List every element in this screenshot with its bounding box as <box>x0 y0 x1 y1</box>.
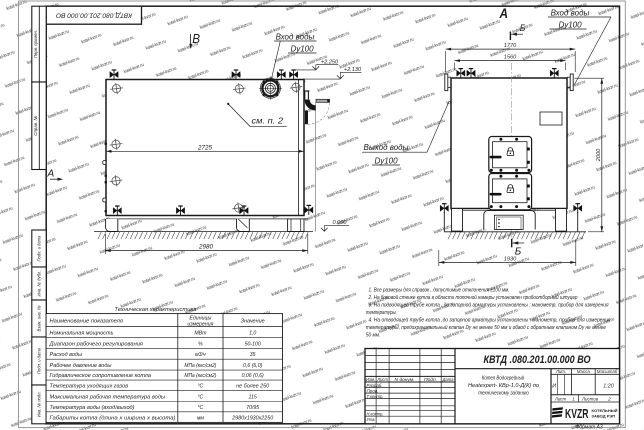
svg-text:ЗАВОД РЭП: ЗАВОД РЭП <box>592 414 616 419</box>
svg-text:Вход воды: Вход воды <box>276 33 315 42</box>
svg-text:Масса: Масса <box>577 369 591 374</box>
svg-text:1930: 1930 <box>504 256 517 262</box>
svg-text:3. На подводящей трубе котла: 3. На подводящей трубе котла , до запорн… <box>369 301 609 308</box>
svg-text:Максимальная рабочая температу: Максимальная рабочая температура воды <box>50 394 166 400</box>
svg-text:N докум.: N докум. <box>395 377 415 382</box>
svg-text:температуры, предохранительный: температуры, предохранительный клапан Dу… <box>366 324 606 331</box>
svg-text:Справ. №: Справ. № <box>33 116 38 136</box>
svg-text:Heatexpert- КВр-1,0-Д(К) по: Heatexpert- КВр-1,0-Д(К) по <box>468 383 539 389</box>
svg-text:МПа (кгс/см2): МПа (кгс/см2) <box>184 373 216 379</box>
svg-text:%: % <box>198 341 203 347</box>
svg-text:Лист: Лист <box>376 377 388 382</box>
svg-text:1770: 1770 <box>504 43 517 49</box>
svg-text:Dy100: Dy100 <box>290 45 314 54</box>
svg-text:115: 115 <box>249 394 257 400</box>
svg-text:МВт: МВт <box>194 331 207 337</box>
svg-text:КВТД.080.201.00.000 ВО: КВТД.080.201.00.000 ВО <box>56 11 132 18</box>
svg-text:Выход воды: Выход воды <box>364 143 409 152</box>
svg-text:Т.контр.: Т.контр. <box>367 394 384 399</box>
svg-text:2: 2 <box>607 397 611 402</box>
svg-text:температуры.: температуры. <box>366 310 397 316</box>
svg-text:Номинальная мощность: Номинальная мощность <box>50 331 114 337</box>
svg-text:Котел Водогрейный: Котел Водогрейный <box>482 375 525 382</box>
svg-text:Подп. и дата: Подп. и дата <box>37 348 42 374</box>
svg-text:Листов: Листов <box>581 397 599 402</box>
svg-text:Инв. № дубл.: Инв. № дубл. <box>37 271 42 297</box>
svg-text:Лист: Лист <box>554 397 567 402</box>
svg-text:Разраб.: Разраб. <box>367 383 383 388</box>
svg-text:А: А <box>499 6 508 21</box>
svg-text:мм: мм <box>197 416 205 422</box>
svg-text:Перв. примен.: Перв. примен. <box>33 30 38 58</box>
svg-text:Габариты котла (длина х ширина: Габариты котла (длина х ширина х высота) <box>50 416 176 422</box>
svg-text:0,06 (0,6): 0,06 (0,6) <box>242 373 264 379</box>
svg-text:70/95: 70/95 <box>246 405 259 411</box>
svg-text:50-100: 50-100 <box>245 341 261 347</box>
svg-text:Б: Б <box>520 23 526 34</box>
svg-text:Лит.: Лит. <box>555 369 566 374</box>
svg-text:35: 35 <box>250 352 256 358</box>
svg-text:2. На боковой стенке котла в: 2. На боковой стенке котла в области топ… <box>368 294 578 301</box>
svg-text:Температура уходящих газов: Температура уходящих газов <box>50 384 129 390</box>
svg-text:°С: °С <box>197 405 203 411</box>
svg-text:КОТЕЛЬНЫЙ: КОТЕЛЬНЫЙ <box>592 408 618 413</box>
svg-text:не более 250: не более 250 <box>236 384 269 390</box>
svg-text:Дата: Дата <box>441 377 454 382</box>
svg-text:Dy100: Dy100 <box>558 21 582 30</box>
svg-text:Изм.: Изм. <box>366 377 376 382</box>
svg-text:2000: 2000 <box>596 148 602 162</box>
svg-text:KVZR: KVZR <box>565 406 589 421</box>
svg-text:Наименование показателя: Наименование показателя <box>50 318 124 324</box>
svg-text:Подп.: Подп. <box>424 377 437 382</box>
svg-text:°С: °С <box>197 394 203 400</box>
svg-text:1560: 1560 <box>504 54 517 60</box>
svg-text:Взам. инв. №: Взам. инв. № <box>37 305 42 331</box>
svg-text:А: А <box>47 169 55 180</box>
svg-text:Температура воды (вход/выход): Температура воды (вход/выход) <box>50 405 135 411</box>
svg-text:КВТД .080.201.00.000 ВО: КВТД .080.201.00.000 ВО <box>484 354 591 366</box>
svg-text:2980х1930х2250: 2980х1930х2250 <box>231 416 273 422</box>
svg-text:Гидравлическое сопротивление к: Гидравлическое сопротивление котла <box>50 373 152 379</box>
svg-text:Диапазон рабочего регулировани: Диапазон рабочего регулирования <box>48 341 143 347</box>
svg-text:Расход воды: Расход воды <box>50 352 83 358</box>
svg-text:50 мм.: 50 мм. <box>366 332 381 338</box>
svg-text:4. На отводящей трубе котла ,: 4. На отводящей трубе котла ,до запорной… <box>369 316 611 323</box>
svg-text:1. Все размеры для справок ,: 1. Все размеры для справок , допустимые … <box>369 287 510 293</box>
svg-text:1,0: 1,0 <box>249 331 256 337</box>
svg-text:1:20: 1:20 <box>603 384 614 390</box>
svg-text:Пров.: Пров. <box>367 388 379 393</box>
svg-text:Н.контр.: Н.контр. <box>367 411 384 416</box>
svg-text:Утв.: Утв. <box>367 417 376 422</box>
svg-text:Вход воды: Вход воды <box>551 9 590 18</box>
svg-text:измерения: измерения <box>187 321 213 327</box>
svg-text:Инв. № подл.: Инв. № подл. <box>37 391 42 417</box>
svg-text:2725: 2725 <box>197 145 213 152</box>
svg-text:Подп. и дата: Подп. и дата <box>37 235 42 261</box>
svg-text:Значение: Значение <box>241 318 265 324</box>
svg-text:техническому заданию: техническому заданию <box>478 390 529 396</box>
svg-text:см. п. 2: см. п. 2 <box>252 116 284 126</box>
svg-text:Dy100: Dy100 <box>374 157 398 166</box>
svg-text:Формат А3: Формат А3 <box>575 425 603 430</box>
svg-text:Масштаб: Масштаб <box>597 369 618 374</box>
svg-text:В: В <box>192 31 200 46</box>
svg-text:И: И <box>552 384 556 390</box>
svg-text:Техническая характеристика: Техническая характеристика <box>114 307 197 313</box>
svg-text:м3/ч: м3/ч <box>195 352 206 358</box>
svg-text:Рабочее давление воды: Рабочее давление воды <box>50 363 112 369</box>
svg-text:2980: 2980 <box>198 244 214 251</box>
svg-text:0,6 (6,0): 0,6 (6,0) <box>243 363 263 369</box>
svg-text:°С: °С <box>197 384 203 390</box>
svg-text:МПа (кгс/см2): МПа (кгс/см2) <box>184 363 216 369</box>
